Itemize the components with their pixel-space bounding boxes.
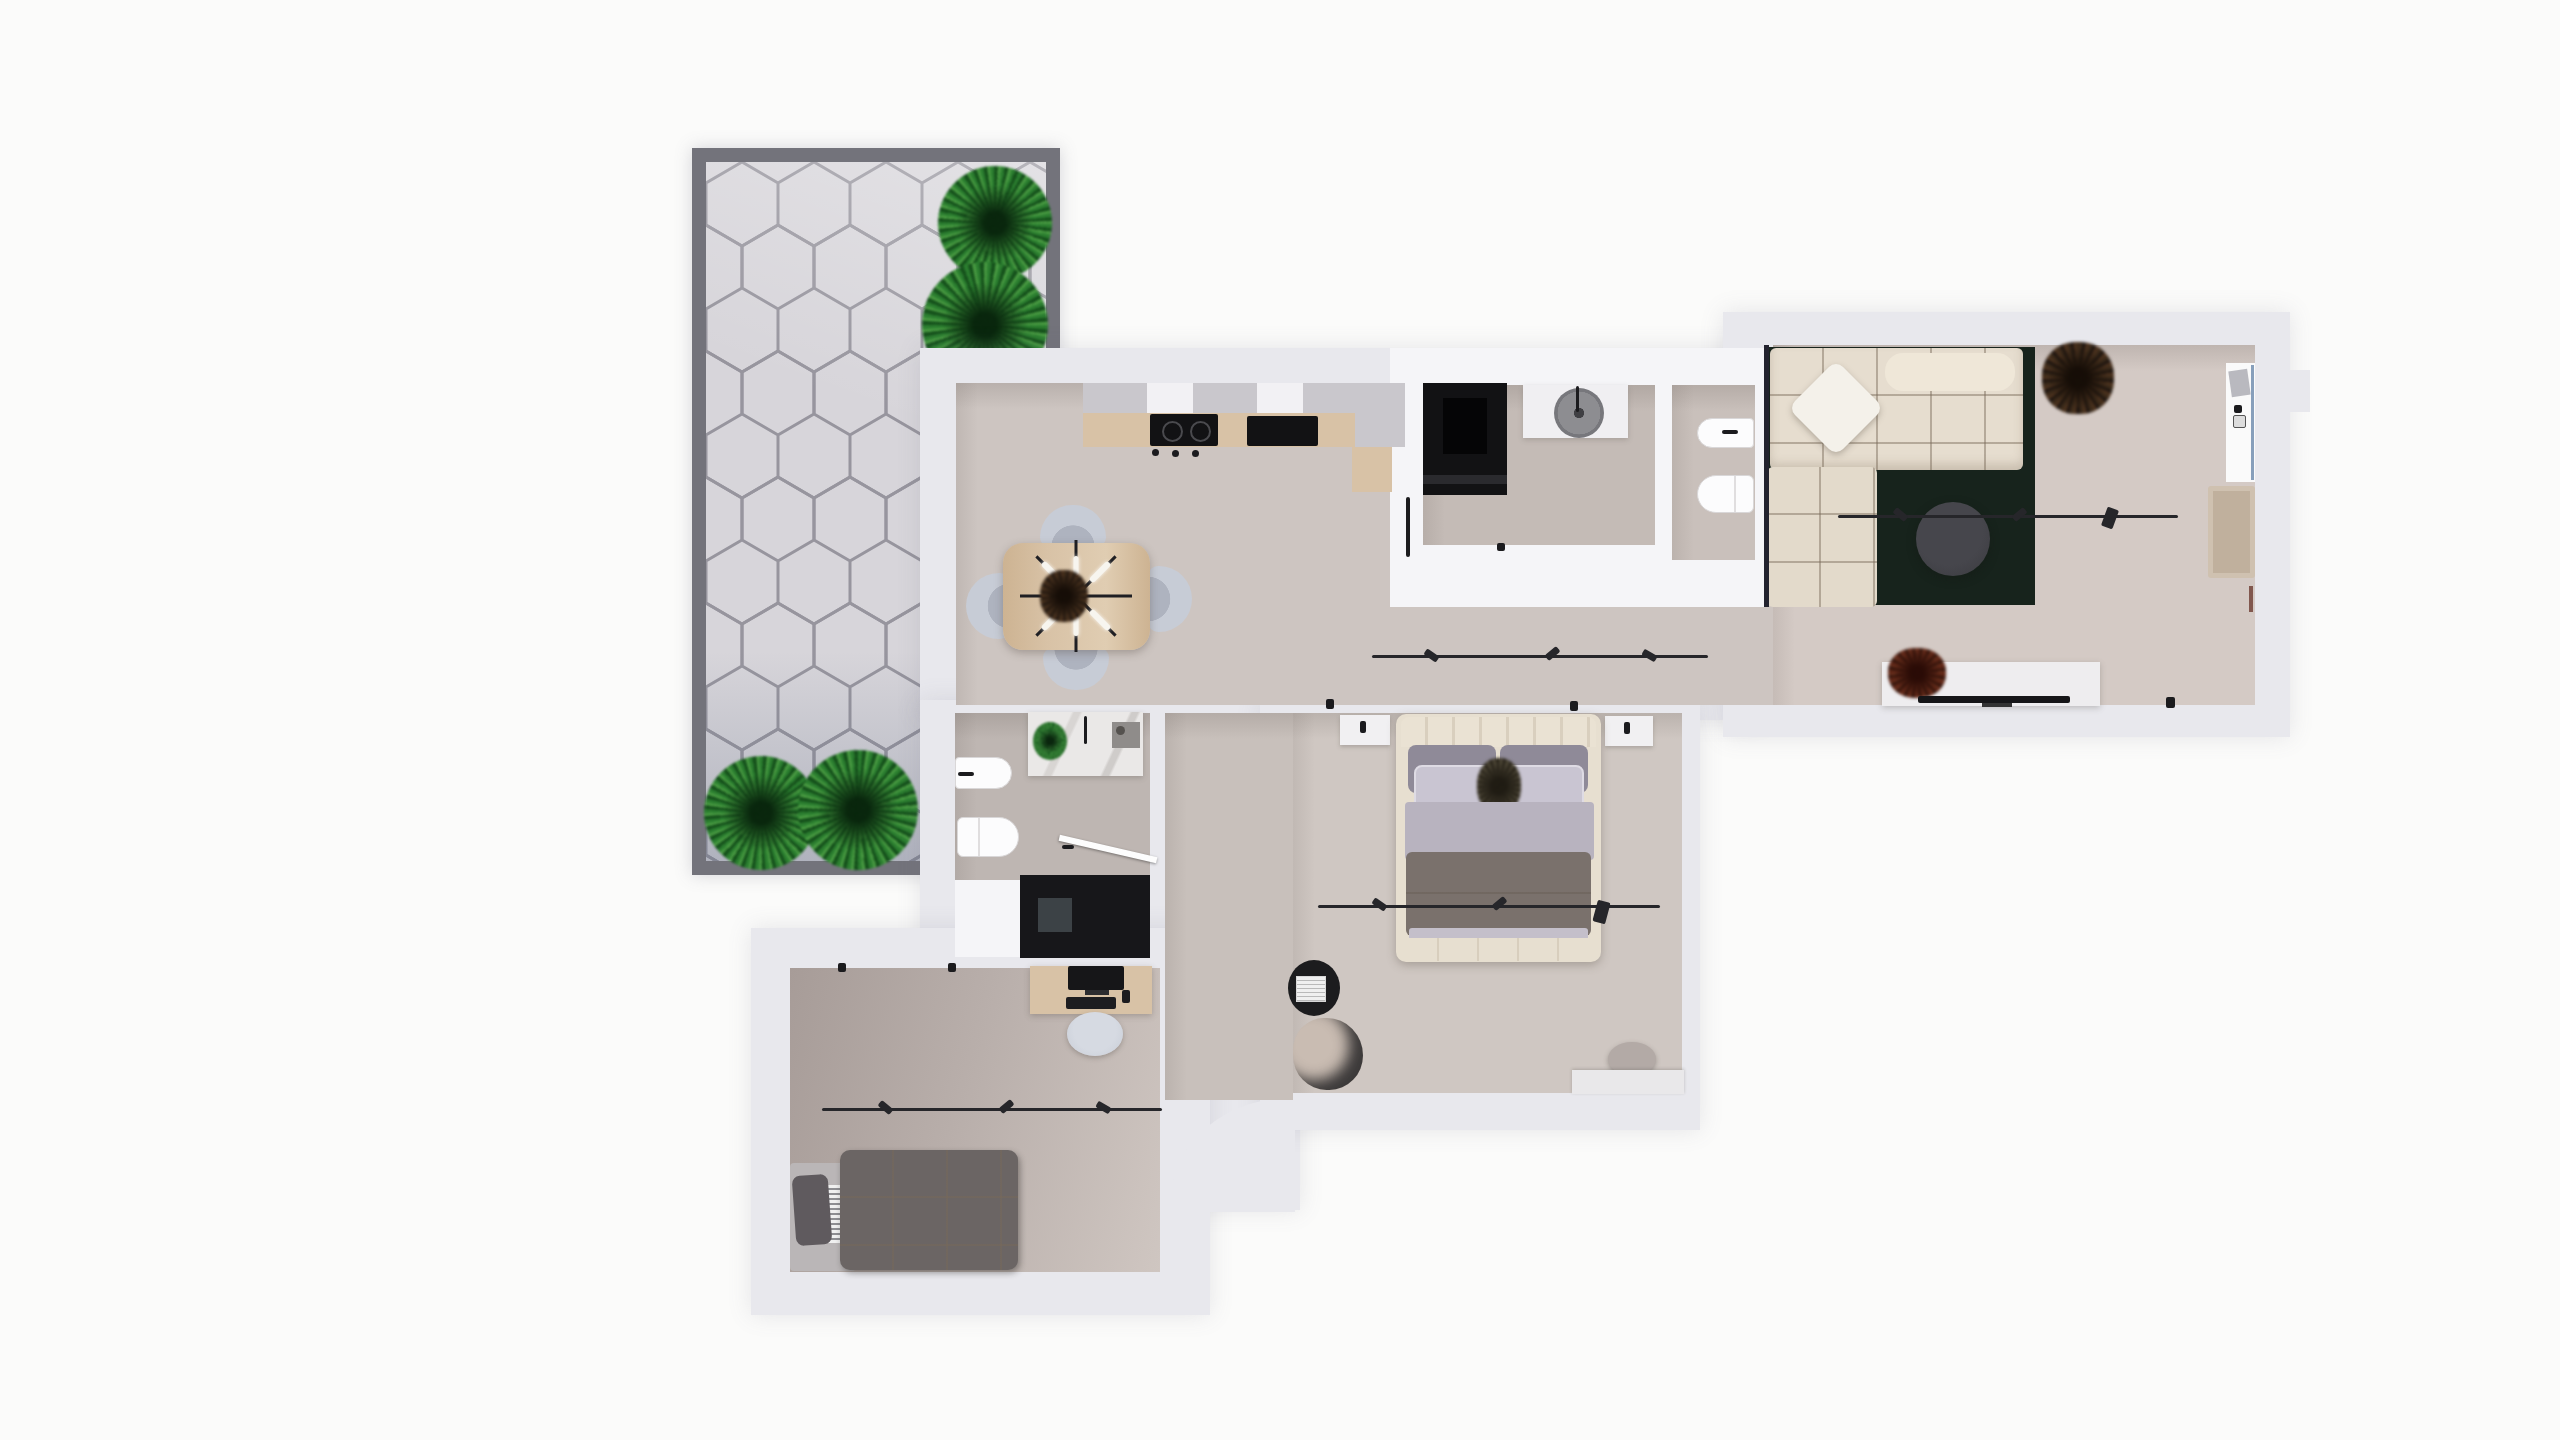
- walk-in-shower: [1020, 875, 1150, 958]
- tv: [1918, 696, 2070, 703]
- reading-pouf: [1293, 1018, 1363, 1090]
- office-phone: [1122, 990, 1130, 1003]
- vanity-faucet: [1084, 716, 1087, 744]
- hallway-light-track: [1372, 655, 1708, 658]
- entry-glass-line: [2249, 586, 2253, 612]
- washer-panel: [1423, 475, 1507, 484]
- wc-toilet-seam: [1734, 476, 1736, 512]
- kitchen-sink-dark: [1247, 416, 1318, 446]
- office-chair: [1067, 1012, 1123, 1056]
- black-side-table: [1288, 960, 1340, 1016]
- living-dried-plant: [2042, 342, 2114, 414]
- floor-plan-canvas: [0, 0, 2560, 1440]
- newspaper: [1296, 976, 1326, 1002]
- office-keyboard: [1066, 997, 1116, 1009]
- shower-drain-panel: [1038, 898, 1072, 932]
- wc-toilet: [1697, 475, 1754, 513]
- burner-left-icon: [1162, 421, 1183, 442]
- laundry-basin: [1554, 388, 1604, 438]
- door-handle-laundry: [1497, 543, 1505, 551]
- bed-duvet: [1406, 852, 1591, 936]
- door-handle-entry: [2166, 697, 2175, 708]
- floor-wc: [1672, 385, 1755, 560]
- kitchen-counter: [1083, 413, 1390, 447]
- cooktop-knob-3: [1192, 450, 1199, 457]
- laundry-door-leaf: [1406, 497, 1410, 557]
- kitchen-tall-cabinet: [1355, 383, 1405, 447]
- table-centerpiece: [1040, 570, 1088, 622]
- nightstand-left-lamp: [1360, 721, 1366, 733]
- door-handle-bedroom: [1326, 699, 1334, 709]
- tan-armchair: [2208, 486, 2255, 578]
- floor-corridor: [1165, 713, 1293, 1100]
- washer-lid: [1443, 398, 1487, 454]
- alcove-glass-edge: [2251, 365, 2254, 480]
- office-monitor-stand: [1085, 990, 1109, 995]
- burner-right-icon: [1190, 421, 1211, 442]
- alcove-item: [2233, 415, 2246, 428]
- cooktop-knob-2: [1172, 450, 1179, 457]
- console-plant: [1888, 648, 1946, 698]
- bed-foot-bench: [1399, 938, 1596, 961]
- laundry-faucet: [1576, 386, 1579, 412]
- door-handle-corridor: [1570, 701, 1578, 711]
- living-light-track: [1838, 515, 2178, 518]
- daybed-duvet: [840, 1150, 1018, 1270]
- shower-door-handle: [1062, 845, 1074, 849]
- vanity-tray: [1112, 722, 1140, 748]
- wall-bump-right: [2288, 370, 2310, 412]
- living-wall-dark-edge: [1764, 345, 1769, 607]
- vanity-plant: [1033, 722, 1067, 760]
- office-monitor: [1068, 966, 1124, 990]
- sofa-chaise-section: [1767, 467, 1877, 607]
- bed-headboard: [1401, 717, 1596, 747]
- door-handle-office-1: [838, 963, 846, 972]
- low-dresser: [1572, 1070, 1684, 1094]
- daybed-pillow: [792, 1174, 833, 1246]
- kitchen-corner-cabinet: [1352, 447, 1392, 492]
- bathroom-toilet: [957, 817, 1019, 857]
- tray-jar: [1116, 726, 1125, 735]
- nightstand-right-lamp: [1624, 722, 1630, 734]
- tv-stand: [1982, 703, 2012, 707]
- coffee-table: [1916, 502, 1990, 576]
- washing-machine: [1423, 383, 1507, 495]
- bathroom-bidet-faucet: [958, 772, 974, 776]
- alcove-box: [2228, 369, 2250, 397]
- cooktop: [1150, 414, 1218, 446]
- cooktop-knob-1: [1152, 449, 1159, 456]
- sofa-back-cushion: [1885, 353, 2015, 391]
- toilet-seam: [978, 818, 980, 856]
- wall-bathroom-notch: [955, 880, 1020, 957]
- door-handle-office-2: [948, 963, 956, 972]
- alcove-item: [2234, 405, 2242, 413]
- wc-bidet-faucet: [1722, 430, 1738, 434]
